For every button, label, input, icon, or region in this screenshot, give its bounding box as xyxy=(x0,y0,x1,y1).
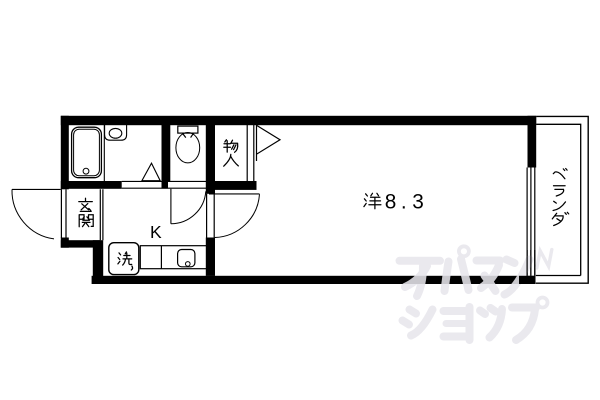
svg-text:K: K xyxy=(150,222,162,242)
svg-text:8: 8 xyxy=(385,191,397,214)
svg-text:3: 3 xyxy=(412,191,424,214)
svg-text:.: . xyxy=(401,191,407,214)
